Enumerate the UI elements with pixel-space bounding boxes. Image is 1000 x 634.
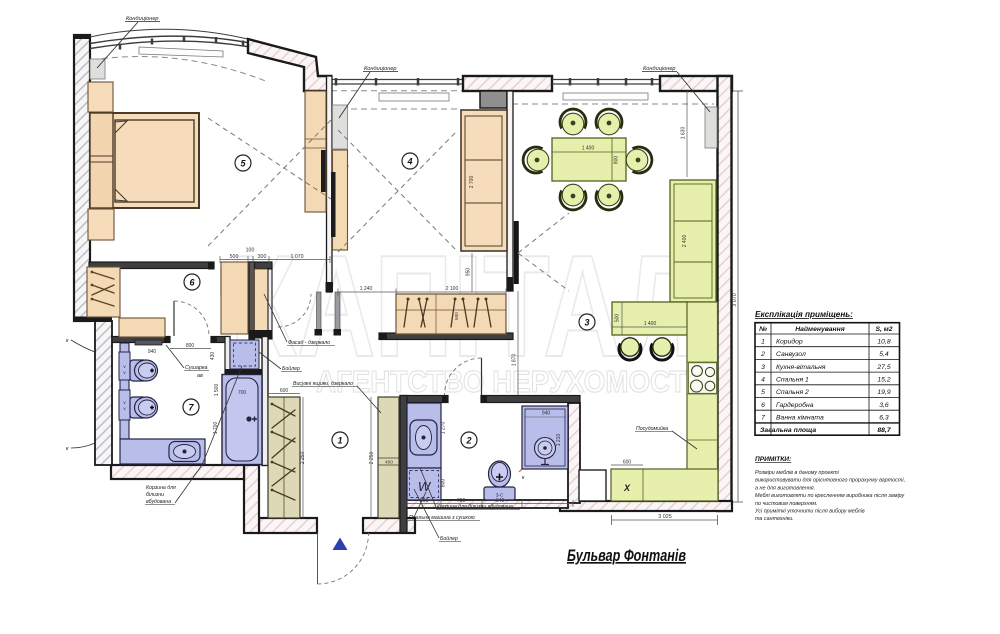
- svg-text:Корзина для білизни вбудована: Корзина для білизни вбудована: [437, 504, 513, 510]
- svg-text:700: 700: [238, 390, 247, 396]
- svg-text:Кондиціонер: Кондиціонер: [126, 16, 159, 22]
- svg-text:Бойлер: Бойлер: [282, 365, 300, 372]
- svg-text:Бульвар Фонтанів: Бульвар Фонтанів: [567, 547, 686, 565]
- svg-text:1 870: 1 870: [512, 354, 518, 367]
- svg-text:940: 940: [148, 349, 157, 355]
- svg-text:Санвузол: Санвузол: [776, 351, 806, 358]
- svg-text:600: 600: [441, 479, 447, 488]
- svg-text:1 700: 1 700: [213, 422, 219, 435]
- svg-text:27,5: 27,5: [876, 364, 890, 371]
- svg-text:3: 3: [584, 318, 589, 328]
- svg-text:600: 600: [280, 388, 289, 394]
- svg-text:Ванна кімната: Ванна кімната: [776, 414, 824, 422]
- svg-text:1 270: 1 270: [441, 422, 447, 435]
- svg-text:Загальна площа: Загальна площа: [760, 427, 816, 434]
- svg-text:10,8: 10,8: [877, 338, 890, 345]
- svg-text:500: 500: [230, 254, 239, 260]
- svg-text:300: 300: [258, 254, 267, 260]
- svg-text:1 630: 1 630: [681, 127, 687, 140]
- svg-text:а не для виготовлення.: а не для виготовлення.: [755, 485, 815, 491]
- svg-text:3: 3: [761, 364, 765, 371]
- svg-text:1 400: 1 400: [644, 321, 657, 327]
- svg-text:100: 100: [246, 248, 255, 254]
- svg-text:Спальня 1: Спальня 1: [776, 377, 809, 384]
- svg-text:2 700: 2 700: [469, 176, 475, 189]
- svg-text:600: 600: [623, 460, 632, 466]
- svg-text:1: 1: [337, 436, 342, 446]
- svg-text:Розміри меблів в даному проект: Розміри меблів в даному проекті: [755, 470, 840, 476]
- svg-text:Висувні ящики, дзеркало: Висувні ящики, дзеркало: [293, 381, 353, 387]
- svg-text:500: 500: [615, 314, 621, 323]
- svg-text:1 240: 1 240: [360, 286, 373, 292]
- svg-text:З-С: З-С: [496, 493, 504, 498]
- svg-text:3,6: 3,6: [879, 402, 889, 409]
- svg-text:S, м2: S, м2: [875, 326, 892, 333]
- svg-text:ав: ав: [197, 373, 203, 379]
- svg-text:800: 800: [614, 156, 620, 165]
- svg-text:Корзина для: Корзина для: [146, 485, 176, 491]
- svg-text:600: 600: [454, 312, 459, 320]
- svg-text:1 210: 1 210: [556, 434, 562, 447]
- svg-text:2 100: 2 100: [446, 286, 459, 292]
- svg-text:Гардеробна: Гардеробна: [776, 401, 814, 409]
- svg-text:Меблі виготовляти по креслення: Меблі виготовляти по кресленням виробник…: [755, 493, 904, 499]
- svg-text:Сушарка: Сушарка: [185, 365, 208, 371]
- svg-text:Кондиціонер: Кондиціонер: [643, 66, 676, 72]
- svg-text:Бойлер: Бойлер: [440, 535, 458, 542]
- svg-text:2 400: 2 400: [682, 235, 688, 248]
- svg-text:та сантехніки.: та сантехніки.: [755, 516, 794, 522]
- svg-text:АГЕНТСТВО НЕРУХОМОСТІ: АГЕНТСТВО НЕРУХОМОСТІ: [316, 364, 694, 399]
- svg-text:6,3: 6,3: [879, 415, 889, 422]
- svg-text:800: 800: [186, 343, 195, 349]
- svg-text:Експлікація приміщень:: Експлікація приміщень:: [755, 310, 853, 319]
- svg-text:5: 5: [761, 389, 765, 396]
- svg-text:№: №: [759, 326, 767, 333]
- svg-text:1 070: 1 070: [291, 254, 304, 260]
- svg-text:5,4: 5,4: [879, 351, 889, 358]
- svg-text:Пральна машина з сушкою: Пральна машина з сушкою: [409, 515, 475, 521]
- svg-text:6: 6: [761, 402, 765, 409]
- svg-text:Усі приміткі уточнити після ви: Усі приміткі уточнити після вибору меблі…: [754, 509, 865, 515]
- svg-text:1 500: 1 500: [214, 384, 220, 397]
- svg-text:3 070: 3 070: [732, 293, 738, 307]
- svg-text:400: 400: [385, 460, 393, 466]
- svg-text:білизни: білизни: [146, 492, 164, 498]
- svg-text:88,7: 88,7: [877, 427, 891, 434]
- svg-text:940: 940: [542, 411, 551, 417]
- svg-text:15,2: 15,2: [877, 377, 890, 384]
- svg-text:X: X: [623, 483, 631, 493]
- svg-text:вбудована: вбудована: [146, 499, 171, 505]
- svg-text:по чистовим поверхням.: по чистовим поверхням.: [755, 501, 818, 507]
- svg-text:використовувати для орієнтовно: використовувати для орієнтовного прораху…: [755, 478, 905, 484]
- svg-text:7: 7: [761, 415, 765, 422]
- svg-text:19,9: 19,9: [877, 389, 890, 396]
- svg-text:1 400: 1 400: [582, 146, 595, 152]
- svg-text:Кухня-вітальня: Кухня-вітальня: [776, 363, 826, 371]
- svg-text:Фасад - дзеркало: Фасад - дзеркало: [288, 340, 330, 346]
- svg-text:4: 4: [761, 377, 765, 384]
- svg-text:2 250: 2 250: [369, 452, 375, 465]
- svg-text:2: 2: [760, 351, 765, 358]
- svg-text:2: 2: [465, 436, 471, 446]
- svg-text:Спальня 2: Спальня 2: [776, 389, 809, 396]
- svg-text:950: 950: [466, 268, 472, 277]
- svg-text:Посудомийка: Посудомийка: [636, 425, 668, 432]
- svg-text:4: 4: [406, 157, 412, 167]
- svg-text:Кондиціонер: Кондиціонер: [364, 66, 397, 72]
- svg-text:1: 1: [761, 338, 765, 345]
- svg-text:Коридор: Коридор: [776, 337, 803, 345]
- svg-text:ПРИМІТКИ:: ПРИМІТКИ:: [755, 456, 791, 463]
- svg-text:Найменування: Найменування: [795, 325, 845, 333]
- svg-text:3 025: 3 025: [658, 514, 672, 520]
- svg-text:430: 430: [210, 352, 216, 361]
